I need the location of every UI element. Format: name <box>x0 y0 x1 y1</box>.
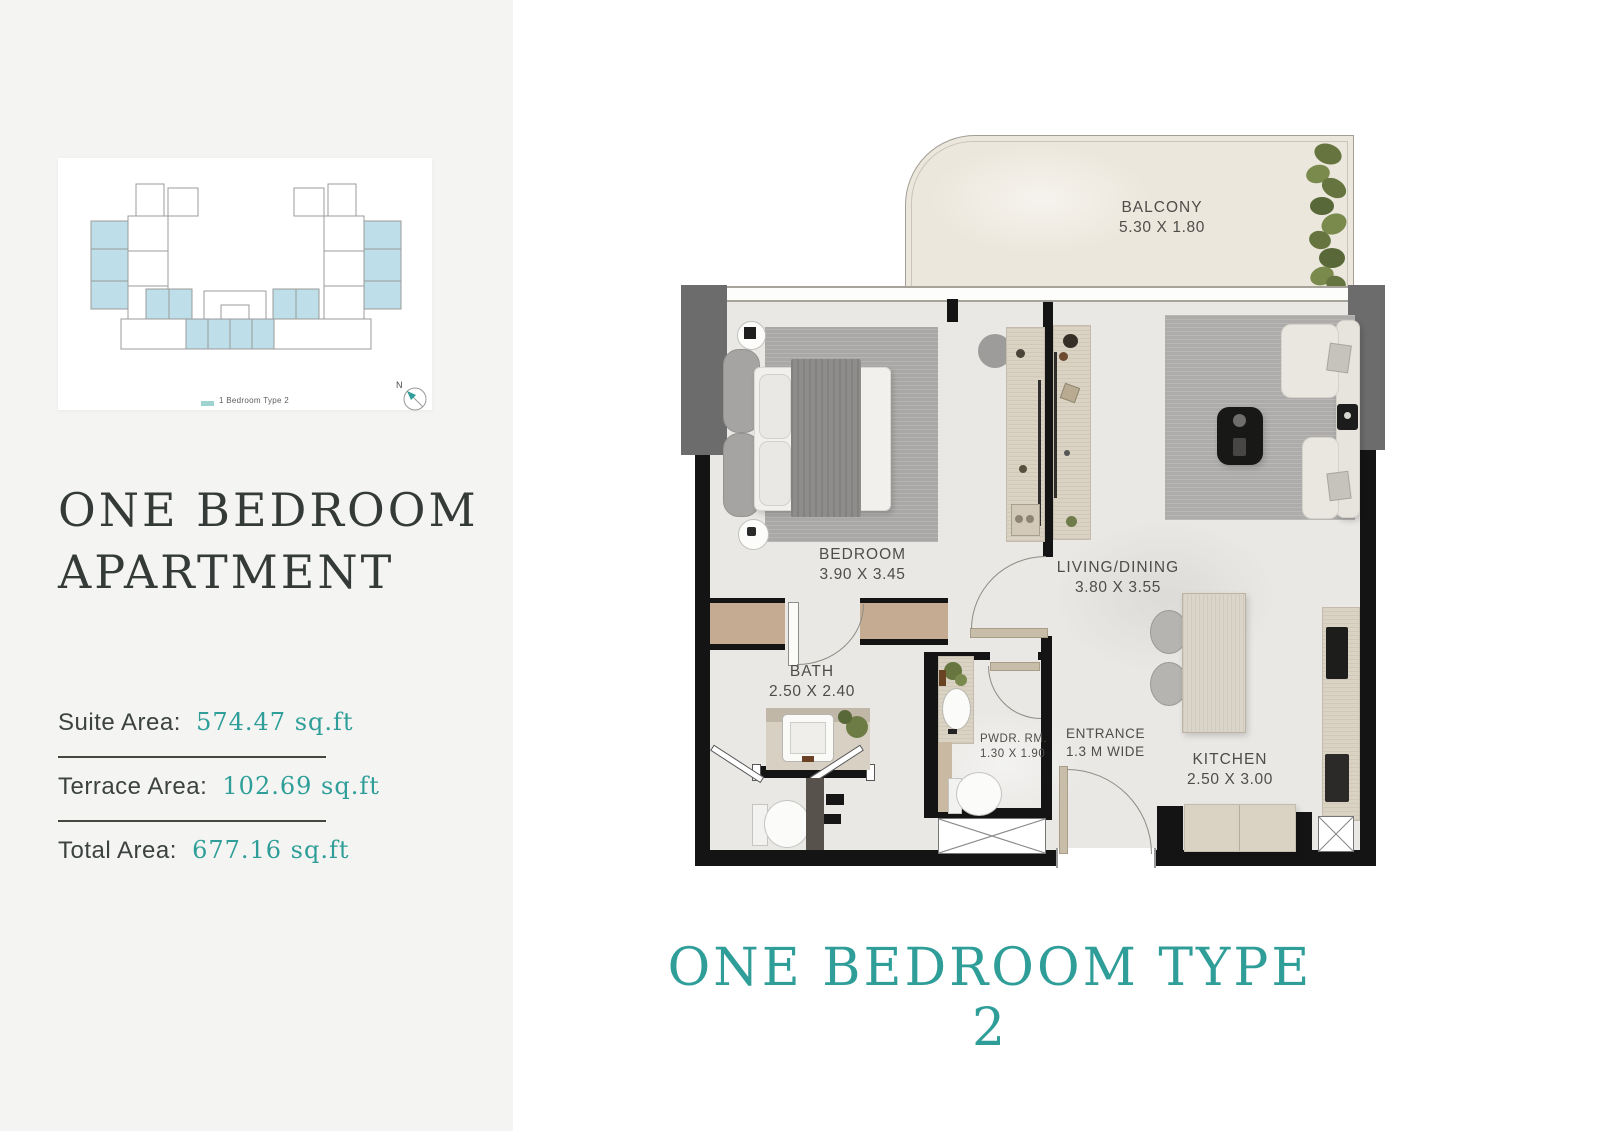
window-mullion <box>947 299 958 322</box>
bedroom-label: BEDROOM 3.90 X 3.45 <box>790 545 935 585</box>
service-shaft <box>1318 816 1354 852</box>
wardrobe-tray-dish <box>1026 515 1034 523</box>
wardrobe-tray-dish <box>1015 515 1023 523</box>
kitchen-wall-stub-left <box>1157 806 1183 854</box>
powder-jar <box>939 670 946 686</box>
side-table-dish <box>1344 412 1351 419</box>
shower-wall <box>806 778 824 850</box>
bath-label: BATH 2.50 X 2.40 <box>752 662 872 702</box>
kitchen-wall-stub-right <box>1294 812 1312 854</box>
closet-left <box>710 598 785 650</box>
wardrobe-knob <box>1019 465 1027 473</box>
floor-plan: BALCONY 5.30 X 1.80 BEDROOM 3.90 X 3.45 … <box>0 0 1600 1131</box>
console-edge <box>1054 352 1057 498</box>
powder-top-wall-right <box>1038 652 1052 660</box>
kitchen-label: KITCHEN 2.50 X 3.00 <box>1160 750 1300 790</box>
bath-sink-basin <box>790 722 826 754</box>
plan-type-title: ONE BEDROOM TYPE 2 <box>640 938 1340 1058</box>
bath-faucet <box>802 756 814 762</box>
wardrobe-knob <box>1016 349 1025 358</box>
exterior-wall-stub-left <box>681 285 727 455</box>
nightstand-item <box>747 527 756 536</box>
shower-fixture <box>824 814 841 824</box>
service-shaft <box>938 818 1046 854</box>
powder-toilet-bowl <box>956 772 1002 816</box>
shower-fixture <box>826 794 844 805</box>
kitchen-sink <box>1325 754 1349 802</box>
living-dining-label: LIVING/DINING 3.80 X 3.55 <box>1047 558 1189 598</box>
console-item <box>1064 450 1070 456</box>
window-wall <box>695 286 1376 302</box>
nightstand-lamp <box>744 327 756 339</box>
partition-hall-entrance <box>1041 636 1052 820</box>
console-item <box>1059 352 1068 361</box>
dining-table <box>1182 593 1246 733</box>
bath-plant <box>838 710 852 724</box>
bed-pillow <box>759 374 791 439</box>
balcony-plant <box>1298 140 1352 292</box>
bath-toilet-bowl <box>764 800 810 848</box>
coffee-table-remote <box>1233 438 1246 456</box>
coffee-table-dish <box>1233 414 1246 427</box>
kitchen-counter-bottom <box>1184 804 1296 852</box>
sofa-pillow <box>1326 343 1352 374</box>
balcony-label: BALCONY 5.30 X 1.80 <box>1092 198 1232 238</box>
sofa-pillow <box>1326 471 1351 501</box>
powder-sink <box>942 688 971 730</box>
closet-right <box>860 598 948 645</box>
powder-plant <box>955 674 967 686</box>
console-plant <box>1066 516 1077 527</box>
kitchen-cooktop <box>1326 627 1348 679</box>
partition-bath-powder <box>924 652 938 818</box>
powder-room-label: PWDR. RM. 1.30 X 1.90 <box>980 732 1062 762</box>
bedroom-door-leaf <box>970 628 1048 638</box>
bed-blanket <box>791 359 861 517</box>
powder-faucet <box>948 729 957 734</box>
bed-pillow <box>759 441 791 506</box>
console-bowl <box>1063 334 1078 348</box>
